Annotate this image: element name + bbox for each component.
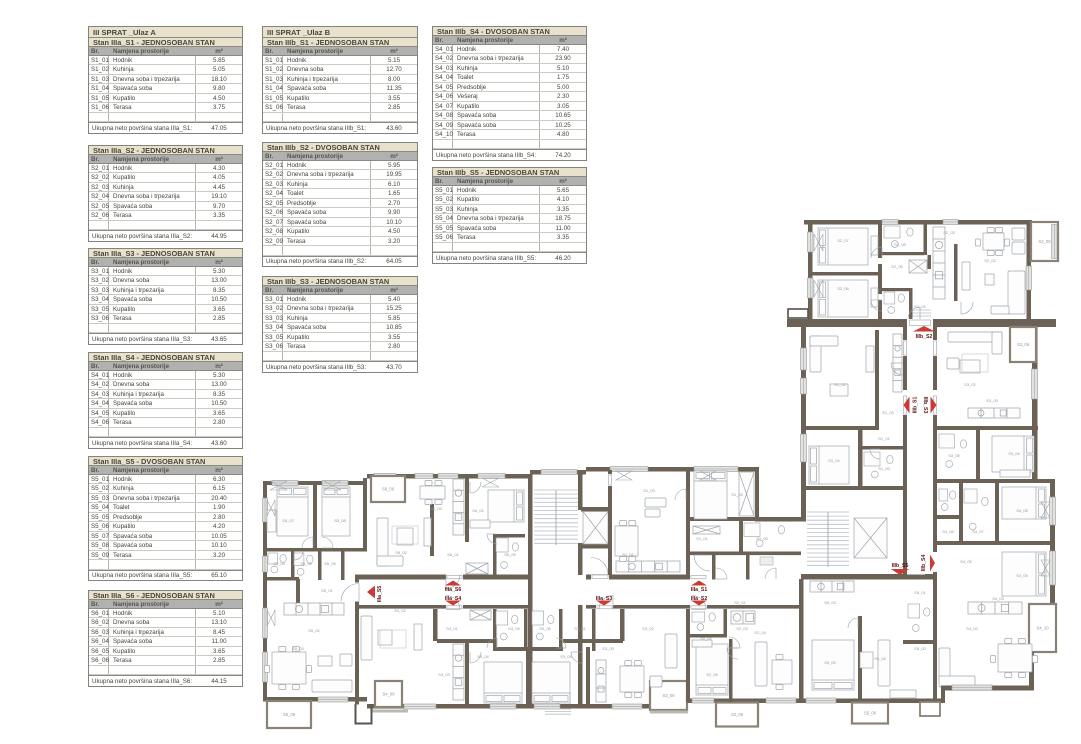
svg-text:S1_01: S1_01 [696,536,708,541]
svg-text:S4_06: S4_06 [942,529,954,534]
svg-text:S1_01: S1_01 [878,436,890,441]
svg-text:S2_02: S2_02 [984,258,996,263]
svg-text:IIIb_S1: IIIb_S1 [913,397,919,414]
svg-text:S2_02: S2_02 [700,636,712,641]
svg-text:S1_02: S1_02 [834,382,846,387]
svg-text:S2_01: S2_01 [734,600,746,605]
svg-text:S5_04: S5_04 [273,561,285,566]
svg-text:S1_05: S1_05 [756,536,768,541]
svg-text:S4_02: S4_02 [966,626,978,631]
svg-text:S3_03: S3_03 [602,646,614,651]
svg-text:S3_04: S3_04 [560,654,572,659]
svg-text:S1_04: S1_04 [731,492,743,497]
svg-text:S5_08: S5_08 [334,518,346,523]
svg-text:S3_05: S3_05 [539,626,551,631]
svg-text:S2_06: S2_06 [731,712,744,717]
svg-text:S6_01: S6_01 [447,552,459,557]
svg-text:S4_09: S4_09 [1016,573,1028,578]
svg-text:S5_06: S5_06 [864,711,877,716]
svg-text:S1_02: S1_02 [622,552,634,557]
svg-text:S4_04: S4_04 [477,654,489,659]
svg-text:S2_09: S2_09 [1038,239,1051,244]
svg-text:S5_01: S5_01 [914,590,926,595]
svg-text:IIIa_S1: IIIa_S1 [691,587,708,593]
svg-text:S5_03: S5_03 [292,646,304,651]
svg-text:S6_03: S6_03 [430,506,442,511]
svg-text:S1_03: S1_03 [882,410,894,415]
svg-text:S4_07: S4_07 [972,529,984,534]
svg-text:S5_04: S5_04 [874,656,886,661]
svg-text:IIIb_S5: IIIb_S5 [892,563,909,569]
svg-text:S4_08: S4_08 [1016,508,1028,513]
svg-text:S2_06: S2_06 [837,286,849,291]
svg-text:S3_05: S3_05 [948,453,960,458]
svg-text:S2_05: S2_05 [706,672,718,677]
svg-text:S4_03: S4_03 [992,596,1004,601]
svg-text:S4_03: S4_03 [438,672,450,677]
svg-text:S2_04: S2_04 [754,630,766,635]
svg-text:S4_01: S4_01 [446,626,458,631]
svg-text:S3_02: S3_02 [642,626,654,631]
svg-text:S4_06: S4_06 [382,692,395,697]
svg-text:S3_06: S3_06 [1017,342,1030,347]
svg-text:S2_05: S2_05 [891,264,903,269]
svg-text:S4_05: S4_05 [508,626,520,631]
svg-text:S5_05: S5_05 [324,561,336,566]
svg-text:S6_04: S6_04 [472,508,484,513]
svg-text:S4_02: S4_02 [394,608,406,613]
svg-text:IIIb_S4: IIIb_S4 [921,555,927,572]
svg-text:S2_03: S2_03 [943,230,955,235]
svg-text:S1_05: S1_05 [878,466,890,471]
svg-text:S6_05: S6_05 [504,552,516,557]
svg-text:IIIb_S3: IIIb_S3 [922,397,928,414]
svg-text:IIIb_S2: IIIb_S2 [916,334,933,340]
svg-text:S5_09: S5_09 [283,712,296,717]
svg-text:S3_02: S3_02 [964,382,976,387]
svg-text:S5_05: S5_05 [824,660,836,665]
svg-text:IIIa_S5: IIIa_S5 [377,586,383,603]
svg-text:S5_06: S5_06 [300,561,312,566]
svg-text:S2_07: S2_07 [837,238,849,243]
svg-text:S3_04: S3_04 [1008,451,1020,456]
svg-text:S5_03: S5_03 [824,600,836,605]
svg-text:S5_02: S5_02 [914,646,926,651]
svg-text:S3_01: S3_01 [574,626,586,631]
svg-text:S5_07: S5_07 [282,518,294,523]
svg-text:S6_06: S6_06 [382,487,395,492]
svg-text:S4_05: S4_05 [960,559,972,564]
svg-text:S1_04: S1_04 [828,458,840,463]
svg-text:S4_10: S4_10 [1036,626,1049,631]
svg-text:S1_03: S1_03 [643,488,655,493]
svg-text:S6_02: S6_02 [395,550,407,555]
svg-text:S2_03: S2_03 [736,626,748,631]
svg-text:S3_03: S3_03 [986,398,998,403]
svg-text:S5_01: S5_01 [321,588,333,593]
svg-text:S2_08: S2_08 [894,242,906,247]
svg-text:S5_02: S5_02 [308,628,320,633]
svg-text:S2_01: S2_01 [914,304,926,309]
svg-text:S3_06: S3_06 [662,693,675,698]
svg-text:IIIa_S6: IIIa_S6 [445,587,462,593]
